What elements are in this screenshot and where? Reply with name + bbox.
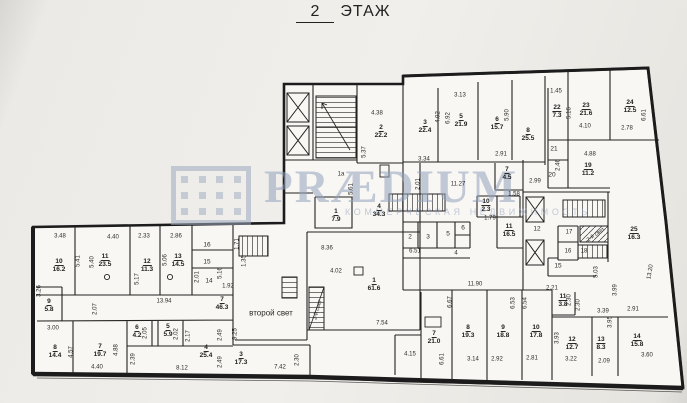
floor-plan-page: 2ЭТАЖ <box>0 0 687 403</box>
floor-plan-drawing <box>0 0 687 403</box>
